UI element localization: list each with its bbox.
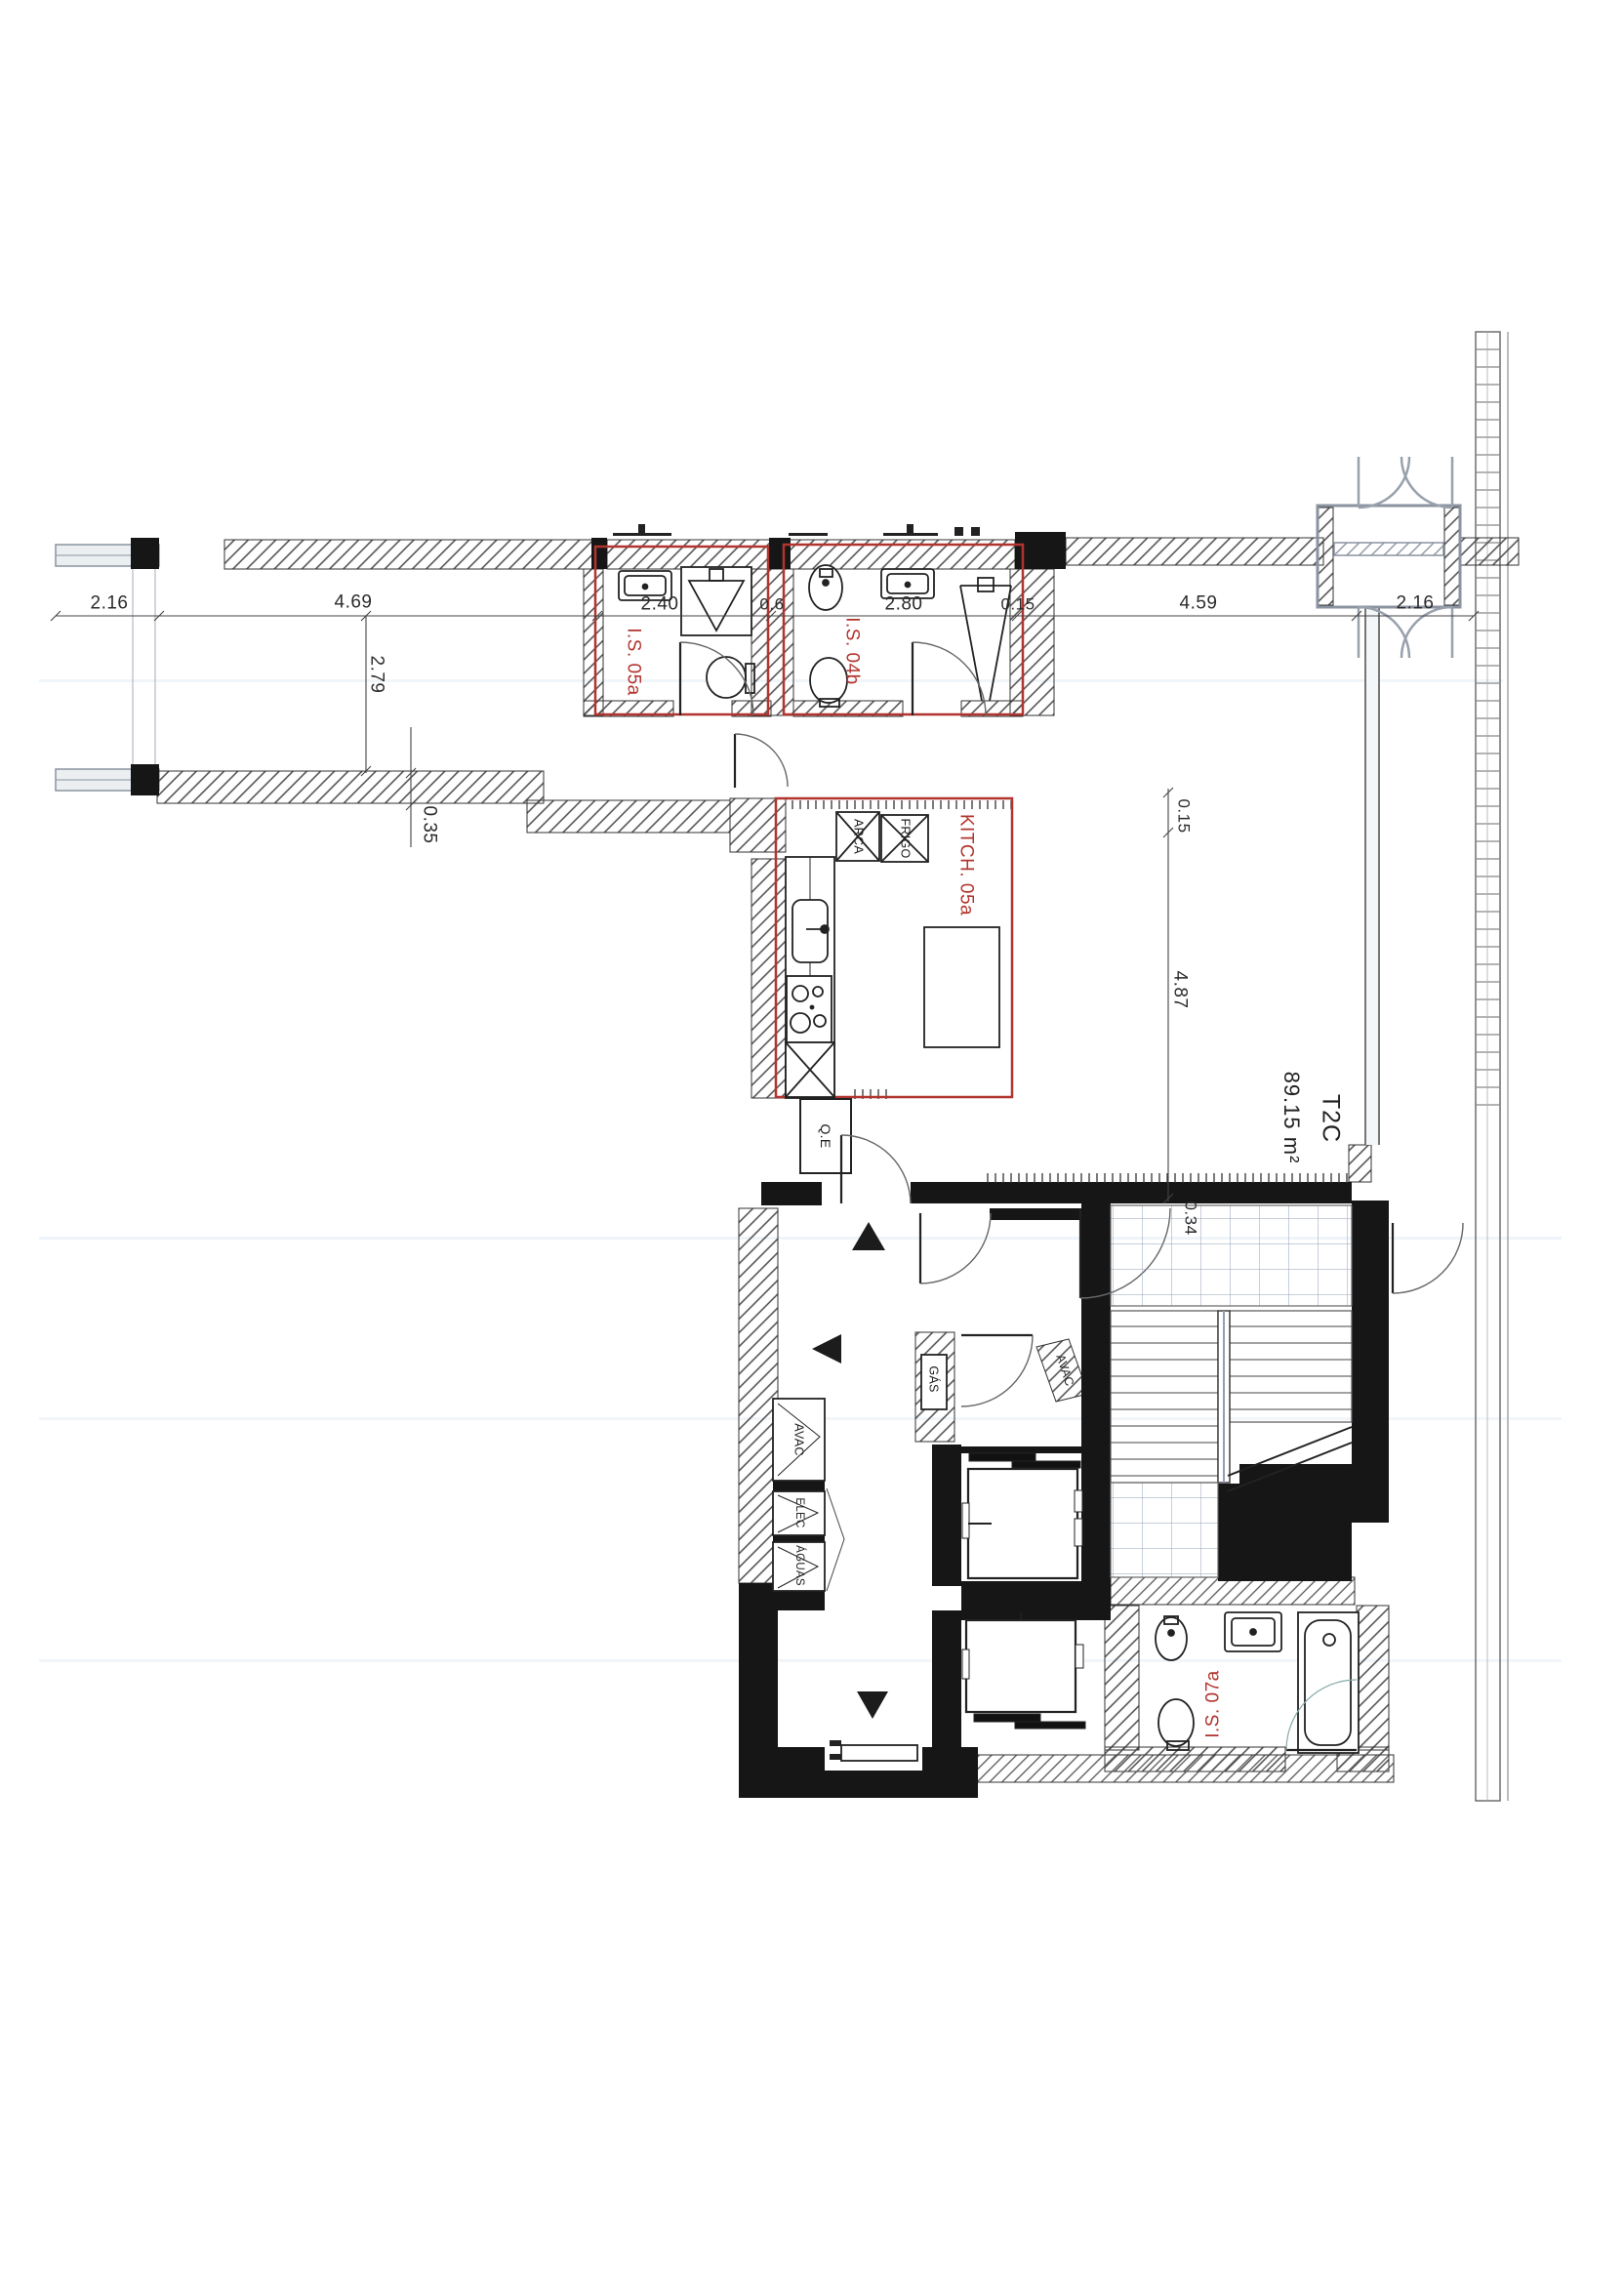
bathroom-is04b [809,565,1011,715]
room-label-kitchen: KITCH. 05a [957,814,976,916]
apartment-area-label: 89.15 m² [1280,1072,1302,1164]
appliance-label-frigo: FRIGO [899,818,912,858]
floor-plan-drawing [0,0,1624,2280]
tiled-landing [1111,1205,1352,1306]
bidet [809,565,842,610]
panel-label-elec: ELEC [792,1497,804,1527]
dim-label-015-side: 0.15 [1176,798,1193,833]
panel-label-qe: Q.E [819,1123,832,1148]
elevator-car [966,1620,1076,1712]
tiled-landing-lower [1111,1483,1218,1577]
entry-vestibule [1318,457,1460,658]
arrow-left-icon [812,1334,841,1364]
left-window-bay [56,545,159,791]
dim-label-015-top: 0.15 [1000,596,1035,613]
panel-label-avac: AVAC [792,1423,805,1455]
room-label-is04b: I.S. 04b [843,617,862,685]
dim-label-035: 0.35 [421,806,439,844]
dishwasher [786,1042,834,1097]
stair-flight-right [1230,1311,1352,1422]
dim-label-487: 4.87 [1171,971,1190,1009]
island [924,927,999,1047]
appliance-label-arca: ARCA [852,819,865,854]
wing-hall-door [735,734,788,788]
dim-label-459: 4.59 [1180,594,1218,613]
toilet [1158,1699,1194,1746]
bathtub [1298,1612,1359,1753]
arrow-down-icon [857,1691,888,1719]
panel-label-gas: GÁS [927,1365,940,1392]
bathroom-is07a [1156,1612,1359,1753]
dim-label-279: 2.79 [368,656,386,694]
dim-label-216-right: 2.16 [1397,594,1435,613]
cooktop [787,976,832,1042]
dim-label-469: 4.69 [335,593,373,612]
kitchen-comb-strip [791,800,1015,809]
corridor-bottom-door [825,1740,922,1771]
room-label-is05a: I.S. 05a [625,628,643,696]
wall-fixture-marks [613,524,980,536]
dim-label-280: 2.80 [885,595,923,614]
elevator-2 [962,1612,1085,1729]
dim-label-216-left: 2.16 [91,594,129,613]
dim-label-06: 0.6 [759,596,784,613]
dim-label-034: 0.34 [1183,1201,1199,1235]
panel-label-aguas: ÁGUAS [792,1545,804,1586]
black-walls [131,532,1389,1798]
apartment-code-label: T2C [1319,1094,1343,1143]
glazed-wall [1365,607,1379,1145]
dim-label-240: 2.40 [641,595,679,614]
arrow-up-icon [852,1222,885,1250]
toilet [707,657,746,698]
shower [681,567,751,635]
floor-plan-page: 2.16 4.69 2.40 0.6 2.80 0.15 4.59 2.16 2… [0,0,1624,2280]
elevator-1 [962,1453,1082,1578]
stair-flight-left [1111,1311,1218,1483]
room-label-is07a: I.S. 07a [1204,1670,1223,1738]
